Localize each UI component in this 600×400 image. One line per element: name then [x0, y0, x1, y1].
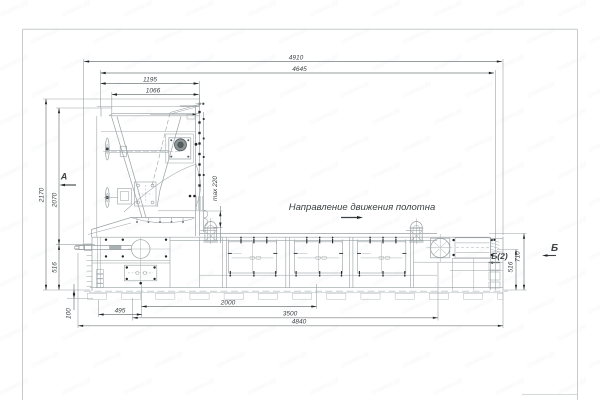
svg-text:станки.ру: станки.ру	[247, 214, 278, 235]
svg-text:станки.ру: станки.ру	[309, 52, 340, 73]
svg-text:станки.ру: станки.ру	[588, 241, 600, 262]
svg-text:станки.ру: станки.ру	[123, 0, 154, 19]
svg-text:станки.ру: станки.ру	[154, 25, 185, 46]
svg-text:станки.ру: станки.ру	[309, 322, 340, 343]
svg-text:станки.ру: станки.ру	[30, 25, 61, 46]
svg-text:4840: 4840	[292, 319, 307, 326]
svg-text:станки.ру: станки.ру	[185, 268, 216, 289]
svg-text:станки.ру: станки.ру	[371, 376, 402, 397]
svg-text:станки.ру: станки.ру	[340, 79, 371, 100]
svg-text:станки.ру: станки.ру	[278, 25, 309, 46]
svg-text:станки.ру: станки.ру	[526, 295, 557, 316]
svg-text:станки.ру: станки.ру	[371, 52, 402, 73]
svg-text:станки.ру: станки.ру	[557, 268, 588, 289]
svg-text:станки.ру: станки.ру	[154, 241, 185, 262]
svg-text:станки.ру: станки.ру	[185, 322, 216, 343]
svg-text:станки.ру: станки.ру	[278, 79, 309, 100]
svg-text:станки.ру: станки.ру	[0, 322, 30, 343]
svg-text:станки.ру: станки.ру	[92, 349, 123, 370]
svg-text:станки.ру: станки.ру	[309, 268, 340, 289]
svg-text:станки.ру: станки.ру	[247, 0, 278, 19]
svg-text:станки.ру: станки.ру	[433, 214, 464, 235]
svg-text:станки.ру: станки.ру	[464, 25, 495, 46]
svg-text:2170: 2170	[39, 187, 46, 203]
svg-text:станки.ру: станки.ру	[309, 376, 340, 397]
svg-text:станки.ру: станки.ру	[216, 79, 247, 100]
svg-text:станки.ру: станки.ру	[526, 79, 557, 100]
svg-text:станки.ру: станки.ру	[309, 160, 340, 181]
svg-text:станки.ру: станки.ру	[92, 79, 123, 100]
svg-text:станки.ру: станки.ру	[557, 0, 588, 19]
svg-text:станки.ру: станки.ру	[216, 25, 247, 46]
svg-text:станки.ру: станки.ру	[464, 133, 495, 154]
svg-text:станки.ру: станки.ру	[402, 133, 433, 154]
svg-text:станки.ру: станки.ру	[526, 187, 557, 208]
svg-text:станки.ру: станки.ру	[588, 295, 600, 316]
svg-text:станки.ру: станки.ру	[371, 214, 402, 235]
svg-text:станки.ру: станки.ру	[371, 106, 402, 127]
svg-text:станки.ру: станки.ру	[247, 106, 278, 127]
svg-text:станки.ру: станки.ру	[402, 349, 433, 370]
svg-text:станки.ру: станки.ру	[30, 79, 61, 100]
svg-text:станки.ру: станки.ру	[123, 376, 154, 397]
svg-text:станки.ру: станки.ру	[0, 0, 30, 19]
svg-text:станки.ру: станки.ру	[61, 322, 92, 343]
svg-text:станки.ру: станки.ру	[216, 133, 247, 154]
svg-text:516: 516	[508, 261, 515, 272]
svg-text:4645: 4645	[292, 66, 307, 73]
svg-text:4910: 4910	[289, 54, 304, 61]
svg-text:станки.ру: станки.ру	[588, 349, 600, 370]
svg-text:станки.ру: станки.ру	[557, 52, 588, 73]
svg-text:100: 100	[66, 308, 73, 319]
svg-text:станки.ру: станки.ру	[123, 106, 154, 127]
svg-text:станки.ру: станки.ру	[557, 376, 588, 397]
svg-text:станки.ру: станки.ру	[30, 133, 61, 154]
svg-text:495: 495	[115, 307, 126, 314]
svg-text:станки.ру: станки.ру	[495, 214, 526, 235]
svg-text:станки.ру: станки.ру	[247, 322, 278, 343]
svg-text:станки.ру: станки.ру	[433, 106, 464, 127]
svg-text:станки.ру: станки.ру	[464, 79, 495, 100]
svg-text:станки.ру: станки.ру	[61, 214, 92, 235]
svg-text:2000: 2000	[220, 299, 236, 306]
svg-text:1195: 1195	[143, 76, 157, 83]
svg-text:станки.ру: станки.ру	[340, 241, 371, 262]
svg-text:станки.ру: станки.ру	[340, 133, 371, 154]
svg-text:станки.ру: станки.ру	[185, 0, 216, 19]
svg-text:станки.ру: станки.ру	[433, 376, 464, 397]
svg-text:станки.ру: станки.ру	[278, 349, 309, 370]
svg-text:станки.ру: станки.ру	[526, 25, 557, 46]
svg-text:станки.ру: станки.ру	[278, 133, 309, 154]
svg-text:станки.ру: станки.ру	[557, 106, 588, 127]
svg-text:станки.ру: станки.ру	[0, 376, 30, 397]
svg-text:станки.ру: станки.ру	[309, 0, 340, 19]
svg-text:станки.ру: станки.ру	[0, 52, 30, 73]
svg-text:станки.ру: станки.ру	[433, 52, 464, 73]
svg-text:станки.ру: станки.ру	[247, 376, 278, 397]
svg-text:станки.ру: станки.ру	[30, 241, 61, 262]
svg-text:станки.ру: станки.ру	[588, 133, 600, 154]
svg-text:станки.ру: станки.ру	[495, 52, 526, 73]
svg-text:станки.ру: станки.ру	[495, 376, 526, 397]
svg-text:станки.ру: станки.ру	[123, 322, 154, 343]
svg-text:станки.ру: станки.ру	[61, 106, 92, 127]
svg-text:станки.ру: станки.ру	[0, 268, 30, 289]
svg-text:516: 516	[52, 262, 59, 273]
svg-text:станки.ру: станки.ру	[92, 133, 123, 154]
svg-text:станки.ру: станки.ру	[309, 106, 340, 127]
svg-text:станки.ру: станки.ру	[185, 52, 216, 73]
svg-text:станки.ру: станки.ру	[557, 160, 588, 181]
svg-text:станки.ру: станки.ру	[0, 214, 30, 235]
svg-text:станки.ру: станки.ру	[526, 133, 557, 154]
svg-text:станки.ру: станки.ру	[433, 322, 464, 343]
svg-text:станки.ру: станки.ру	[216, 349, 247, 370]
svg-text:станки.ру: станки.ру	[309, 214, 340, 235]
svg-text:станки.ру: станки.ру	[433, 268, 464, 289]
svg-text:станки.ру: станки.ру	[185, 106, 216, 127]
svg-text:станки.ру: станки.ру	[61, 0, 92, 19]
svg-text:станки.ру: станки.ру	[247, 52, 278, 73]
svg-text:станки.ру: станки.ру	[464, 349, 495, 370]
svg-text:станки.ру: станки.ру	[30, 295, 61, 316]
svg-text:станки.ру: станки.ру	[0, 160, 30, 181]
svg-text:станки.ру: станки.ру	[588, 187, 600, 208]
svg-text:станки.ру: станки.ру	[92, 25, 123, 46]
svg-text:710: 710	[515, 251, 522, 262]
svg-text:станки.ру: станки.ру	[402, 241, 433, 262]
svg-text:станки.ру: станки.ру	[433, 0, 464, 19]
svg-text:3500: 3500	[283, 311, 298, 318]
svg-text:1066: 1066	[146, 87, 161, 94]
svg-text:станки.ру: станки.ру	[371, 160, 402, 181]
svg-text:Б: Б	[551, 243, 558, 254]
svg-text:станки.ру: станки.ру	[495, 160, 526, 181]
svg-text:станки.ру: станки.ру	[30, 349, 61, 370]
svg-text:станки.ру: станки.ру	[495, 0, 526, 19]
svg-text:станки.ру: станки.ру	[340, 295, 371, 316]
svg-text:станки.ру: станки.ру	[340, 349, 371, 370]
svg-text:А: А	[60, 172, 68, 182]
svg-text:станки.ру: станки.ру	[402, 295, 433, 316]
svg-text:станки.ру: станки.ру	[371, 322, 402, 343]
svg-text:станки.ру: станки.ру	[247, 160, 278, 181]
svg-text:станки.ру: станки.ру	[278, 241, 309, 262]
svg-text:станки.ру: станки.ру	[92, 241, 123, 262]
svg-text:Направление движения полотна: Направление движения полотна	[289, 202, 435, 213]
svg-text:станки.ру: станки.ру	[464, 187, 495, 208]
svg-text:станки.ру: станки.ру	[216, 241, 247, 262]
svg-text:станки.ру: станки.ру	[526, 349, 557, 370]
svg-text:станки.ру: станки.ру	[371, 268, 402, 289]
svg-text:max 220: max 220	[212, 176, 219, 201]
svg-text:станки.ру: станки.ру	[185, 376, 216, 397]
svg-text:Б(2): Б(2)	[491, 251, 508, 261]
svg-text:станки.ру: станки.ру	[154, 349, 185, 370]
svg-text:станки.ру: станки.ру	[588, 25, 600, 46]
svg-text:станки.ру: станки.ру	[371, 0, 402, 19]
svg-text:станки.ру: станки.ру	[557, 322, 588, 343]
svg-text:станки.ру: станки.ру	[557, 214, 588, 235]
svg-text:станки.ру: станки.ру	[154, 295, 185, 316]
svg-text:2070: 2070	[52, 192, 59, 208]
svg-text:станки.ру: станки.ру	[247, 268, 278, 289]
svg-text:станки.ру: станки.ру	[61, 376, 92, 397]
svg-text:станки.ру: станки.ру	[588, 79, 600, 100]
svg-text:станки.ру: станки.ру	[61, 52, 92, 73]
svg-text:станки.ру: станки.ру	[464, 295, 495, 316]
svg-text:станки.ру: станки.ру	[216, 187, 247, 208]
svg-text:станки.ру: станки.ру	[433, 160, 464, 181]
svg-text:станки.ру: станки.ру	[402, 25, 433, 46]
svg-text:станки.ру: станки.ру	[340, 25, 371, 46]
svg-text:станки.ру: станки.ру	[402, 79, 433, 100]
svg-text:станки.ру: станки.ру	[0, 106, 30, 127]
svg-text:станки.ру: станки.ру	[495, 106, 526, 127]
svg-text:станки.ру: станки.ру	[123, 52, 154, 73]
